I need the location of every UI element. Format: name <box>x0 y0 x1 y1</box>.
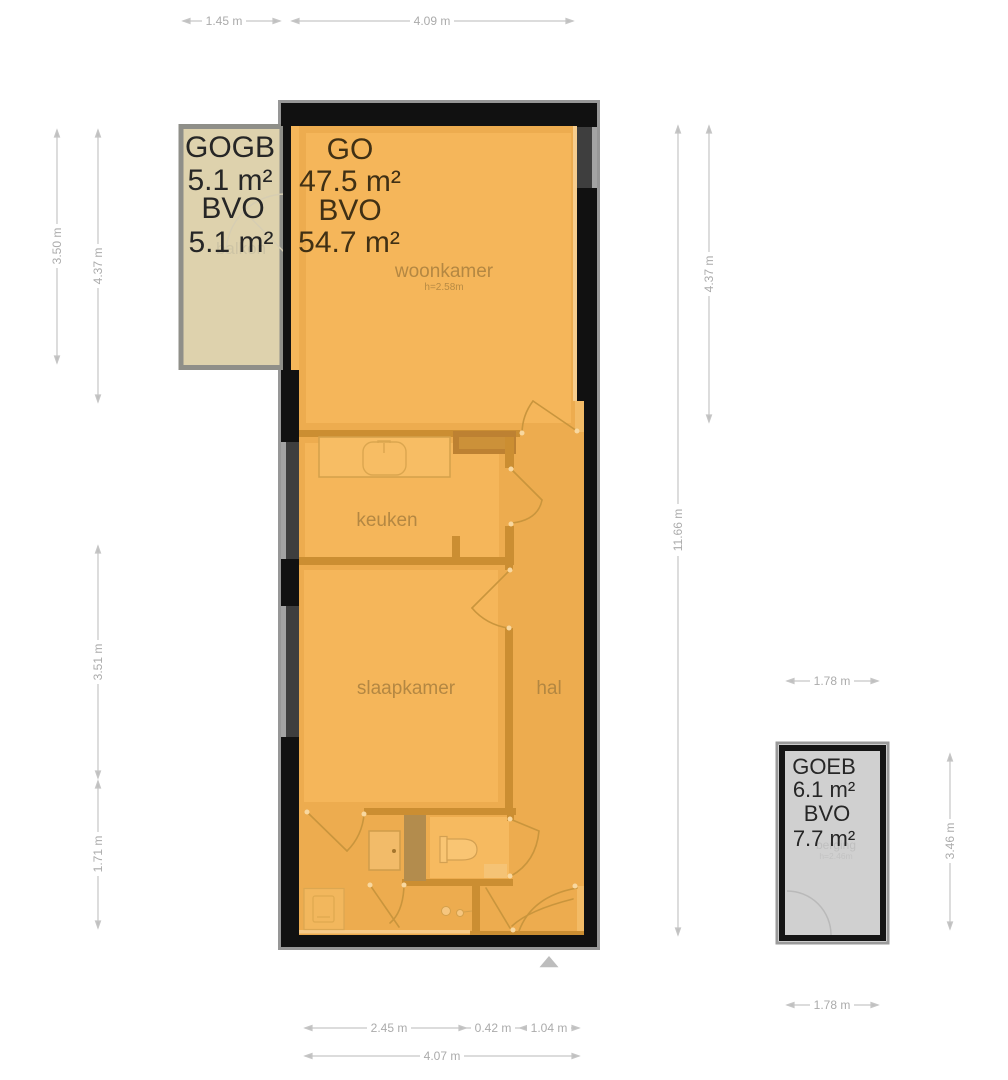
svg-text:GO: GO <box>327 133 374 166</box>
svg-text:1.71 m: 1.71 m <box>91 836 105 873</box>
svg-text:h=2.46m: h=2.46m <box>819 851 852 861</box>
svg-text:1.78 m: 1.78 m <box>814 674 851 688</box>
svg-text:BVO: BVO <box>201 192 264 225</box>
svg-text:0.42 m: 0.42 m <box>475 1021 512 1035</box>
svg-text:h=2.58m: h=2.58m <box>424 282 463 293</box>
svg-text:4.37 m: 4.37 m <box>91 248 105 285</box>
svg-text:GOGB: GOGB <box>185 131 275 164</box>
svg-text:7.7 m²: 7.7 m² <box>793 826 855 851</box>
svg-text:BVO: BVO <box>318 194 381 227</box>
svg-text:11.66 m: 11.66 m <box>671 509 685 551</box>
svg-text:GOEB: GOEB <box>792 754 856 779</box>
svg-text:slaapkamer: slaapkamer <box>357 678 456 699</box>
svg-text:3.51 m: 3.51 m <box>91 644 105 681</box>
svg-text:1.45 m: 1.45 m <box>206 14 243 28</box>
svg-text:woonkamer: woonkamer <box>394 261 494 282</box>
svg-text:4.37 m: 4.37 m <box>702 256 716 293</box>
svg-text:1.04 m: 1.04 m <box>531 1021 568 1035</box>
svg-text:BVO: BVO <box>804 801 850 826</box>
svg-text:3.50 m: 3.50 m <box>50 228 64 265</box>
svg-text:1.78 m: 1.78 m <box>814 998 851 1012</box>
svg-text:4.09 m: 4.09 m <box>414 14 451 28</box>
svg-text:keuken: keuken <box>356 510 417 531</box>
svg-text:hal: hal <box>536 678 561 699</box>
svg-text:54.7 m²: 54.7 m² <box>298 226 400 259</box>
svg-text:5.1 m²: 5.1 m² <box>188 226 273 259</box>
svg-text:6.1 m²: 6.1 m² <box>793 777 855 802</box>
svg-text:4.07 m: 4.07 m <box>424 1049 461 1063</box>
svg-text:2.45 m: 2.45 m <box>371 1021 408 1035</box>
svg-text:3.46 m: 3.46 m <box>943 823 957 860</box>
